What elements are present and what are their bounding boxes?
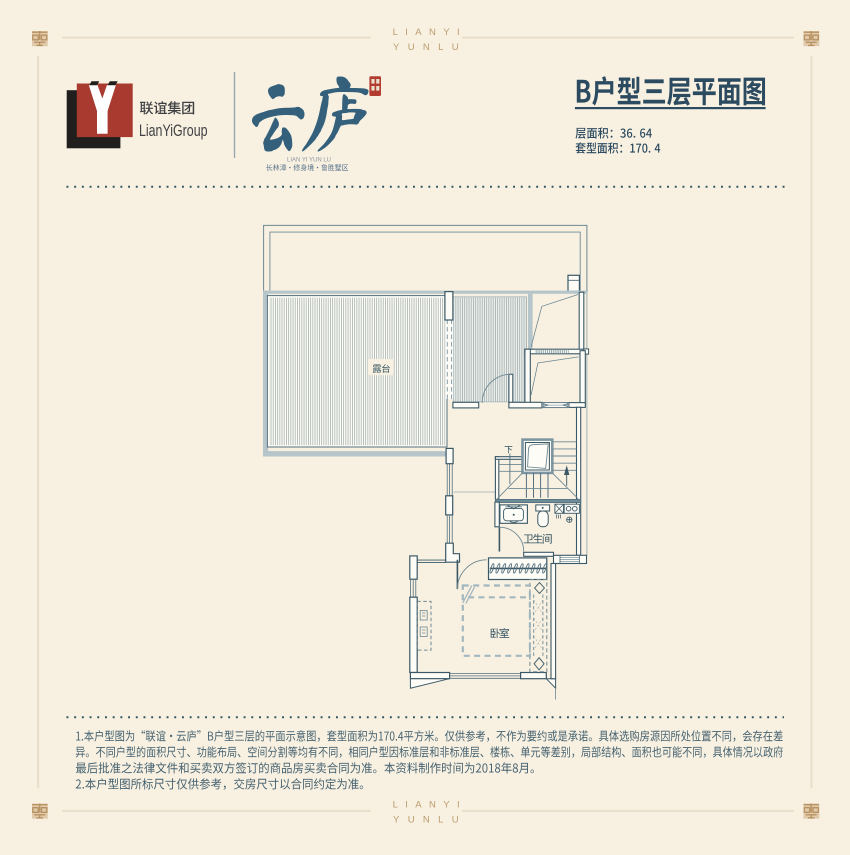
svg-text:LianYiGroup: LianYiGroup (139, 121, 208, 140)
svg-text:YUNLU: YUNLU (393, 815, 463, 826)
svg-text:LIAN YI YUN LU: LIAN YI YUN LU (287, 158, 333, 164)
svg-text:LIANYI: LIANYI (393, 27, 464, 38)
svg-text:LIANYI: LIANYI (393, 800, 464, 811)
svg-text:YUNLU: YUNLU (393, 42, 463, 53)
